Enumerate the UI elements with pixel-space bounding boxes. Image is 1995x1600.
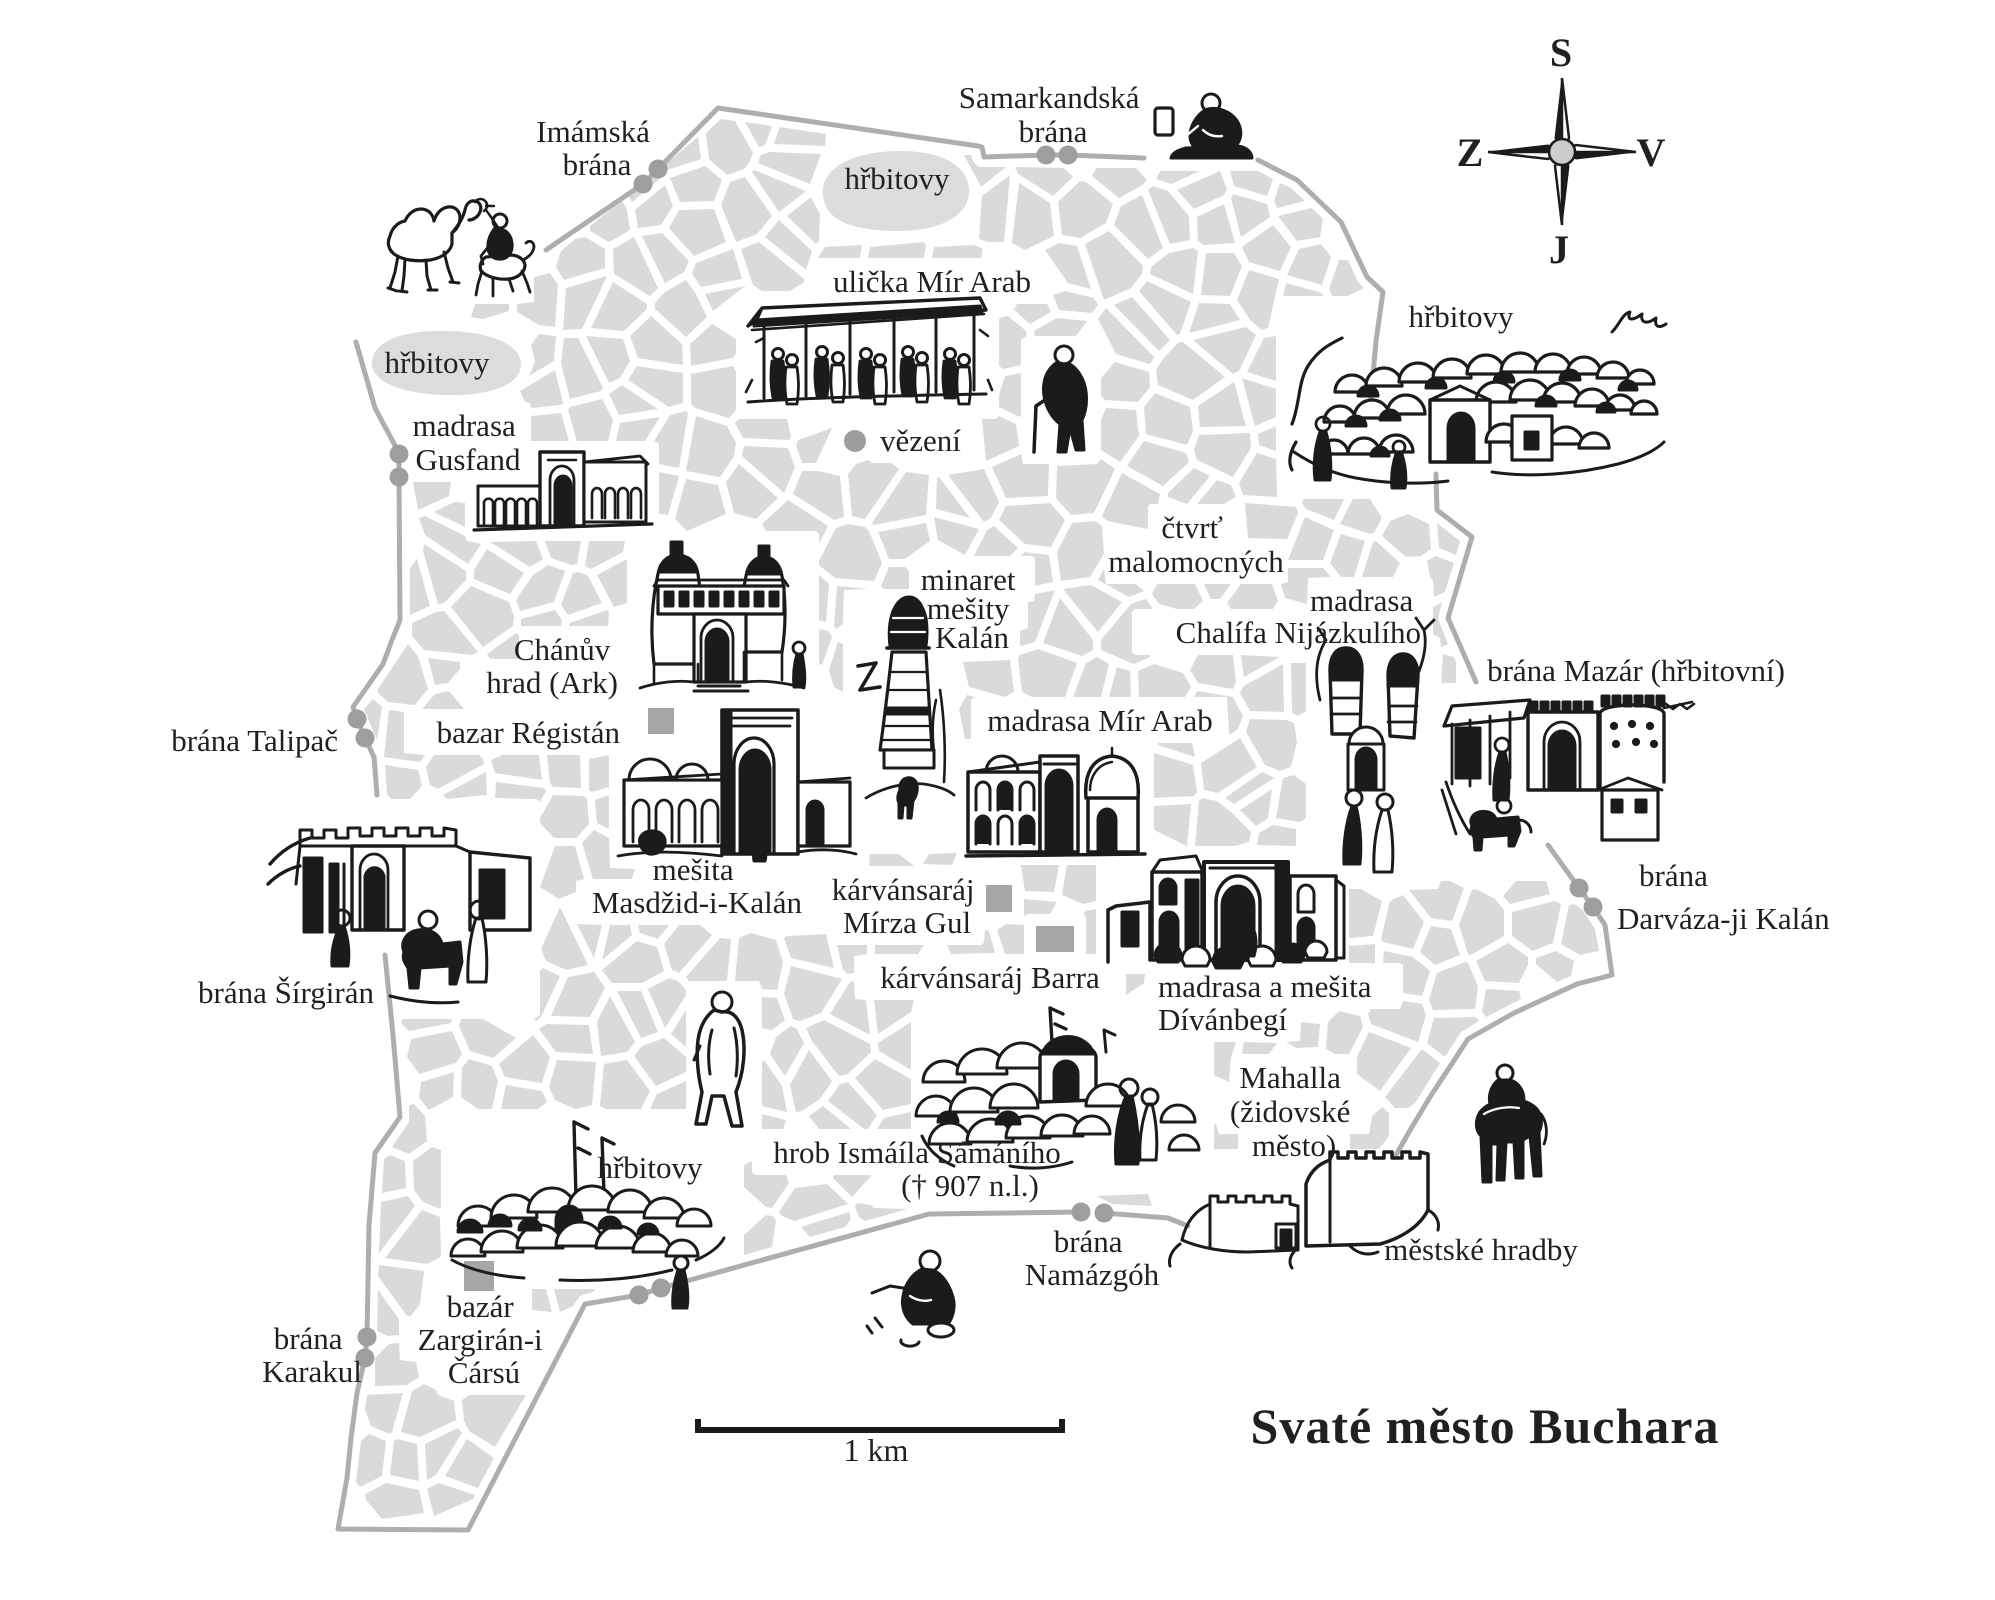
svg-text:(† 907 n.l.): († 907 n.l.) bbox=[901, 1168, 1039, 1203]
svg-text:1 km: 1 km bbox=[844, 1432, 909, 1468]
svg-text:brána Šírgirán: brána Šírgirán bbox=[198, 975, 374, 1010]
svg-text:J: J bbox=[1549, 227, 1569, 272]
svg-text:městské hradby: městské hradby bbox=[1384, 1232, 1578, 1267]
svg-text:minaret mešity Kalán: minaret mešity Kalán bbox=[921, 562, 1023, 655]
svg-text:brána Karakul: brána Karakul bbox=[262, 1321, 362, 1389]
svg-text:Svaté město Buchara: Svaté město Buchara bbox=[1251, 1398, 1720, 1454]
svg-text:hřbitovy: hřbitovy bbox=[1408, 299, 1514, 334]
svg-text:hřbitovy: hřbitovy bbox=[384, 345, 490, 380]
svg-text:madrasa Mír Arab: madrasa Mír Arab bbox=[987, 703, 1213, 738]
svg-text:hřbitovy: hřbitovy bbox=[597, 1150, 703, 1185]
svg-text:Z: Z bbox=[1457, 130, 1484, 175]
svg-text:bazar Régistán: bazar Régistán bbox=[437, 715, 621, 750]
svg-text:brána Talipač: brána Talipač bbox=[171, 723, 338, 758]
svg-text:V: V bbox=[1637, 130, 1666, 175]
svg-text:ulička Mír Arab: ulička Mír Arab bbox=[833, 264, 1031, 299]
svg-text:S: S bbox=[1550, 30, 1572, 75]
svg-text:madrasa Gusfand: madrasa Gusfand bbox=[412, 408, 523, 477]
svg-text:brána Mazár (hřbitovní): brána Mazár (hřbitovní) bbox=[1487, 653, 1785, 688]
svg-text:hřbitovy: hřbitovy bbox=[844, 161, 950, 196]
svg-text:kárvánsaráj Mírza Gul: kárvánsaráj Mírza Gul bbox=[832, 872, 983, 940]
svg-text:kárvánsaráj Barra: kárvánsaráj Barra bbox=[880, 960, 1100, 995]
svg-text:vězení: vězení bbox=[880, 423, 961, 458]
svg-text:hrob Ismáíla Sámáního: hrob Ismáíla Sámáního bbox=[773, 1135, 1061, 1170]
